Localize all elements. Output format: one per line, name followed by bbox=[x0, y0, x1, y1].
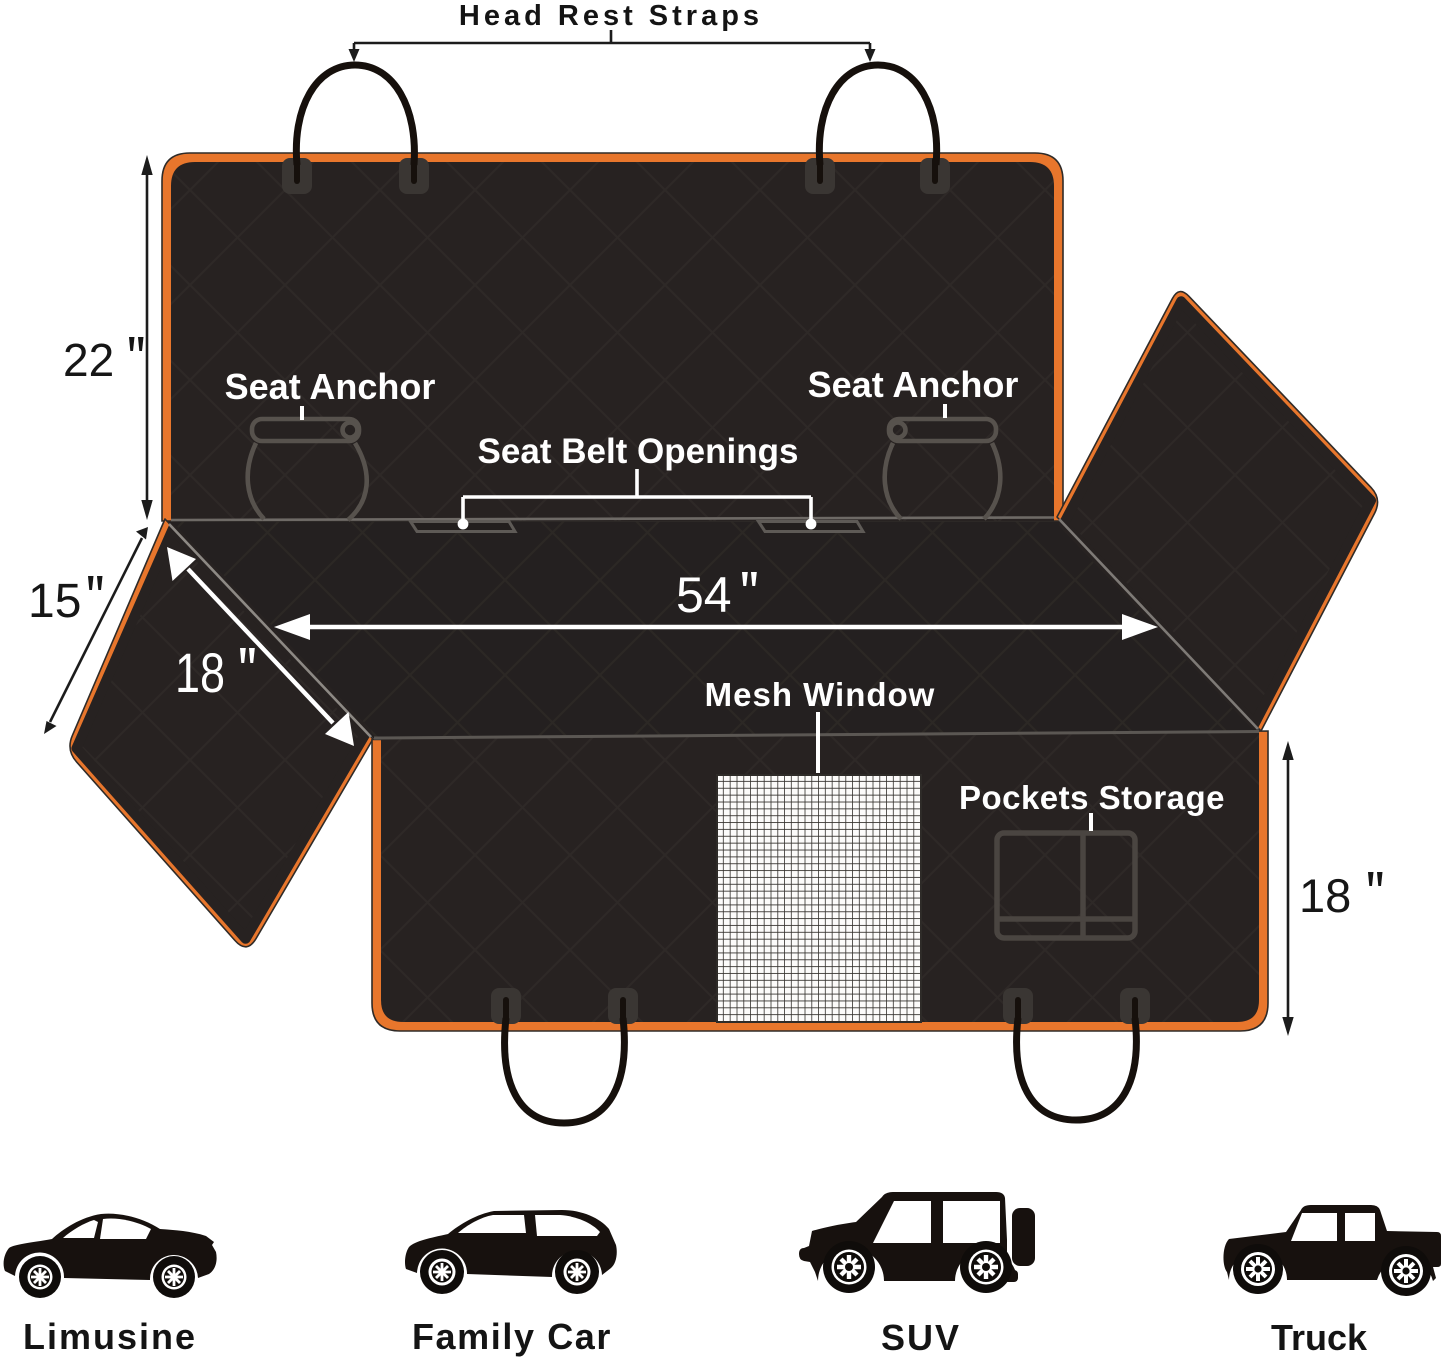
svg-text:Seat Anchor: Seat Anchor bbox=[808, 364, 1019, 405]
svg-text:18: 18 bbox=[1299, 869, 1351, 922]
svg-text:Limusine: Limusine bbox=[23, 1316, 197, 1357]
svg-text:15: 15 bbox=[28, 575, 81, 628]
svg-text:18: 18 bbox=[175, 641, 225, 704]
svg-text:Seat Belt Openings: Seat Belt Openings bbox=[478, 432, 799, 471]
svg-text:Seat Anchor: Seat Anchor bbox=[225, 366, 436, 407]
svg-text:Family Car: Family Car bbox=[412, 1316, 612, 1357]
svg-text:Truck: Truck bbox=[1271, 1317, 1368, 1358]
svg-text:54: 54 bbox=[676, 567, 732, 623]
svg-text:22: 22 bbox=[63, 334, 114, 386]
svg-text:Head Rest Straps: Head Rest Straps bbox=[459, 0, 763, 32]
svg-text:Pockets Storage: Pockets Storage bbox=[959, 779, 1225, 816]
svg-text:SUV: SUV bbox=[881, 1317, 961, 1358]
svg-text:Mesh Window: Mesh Window bbox=[705, 676, 936, 713]
